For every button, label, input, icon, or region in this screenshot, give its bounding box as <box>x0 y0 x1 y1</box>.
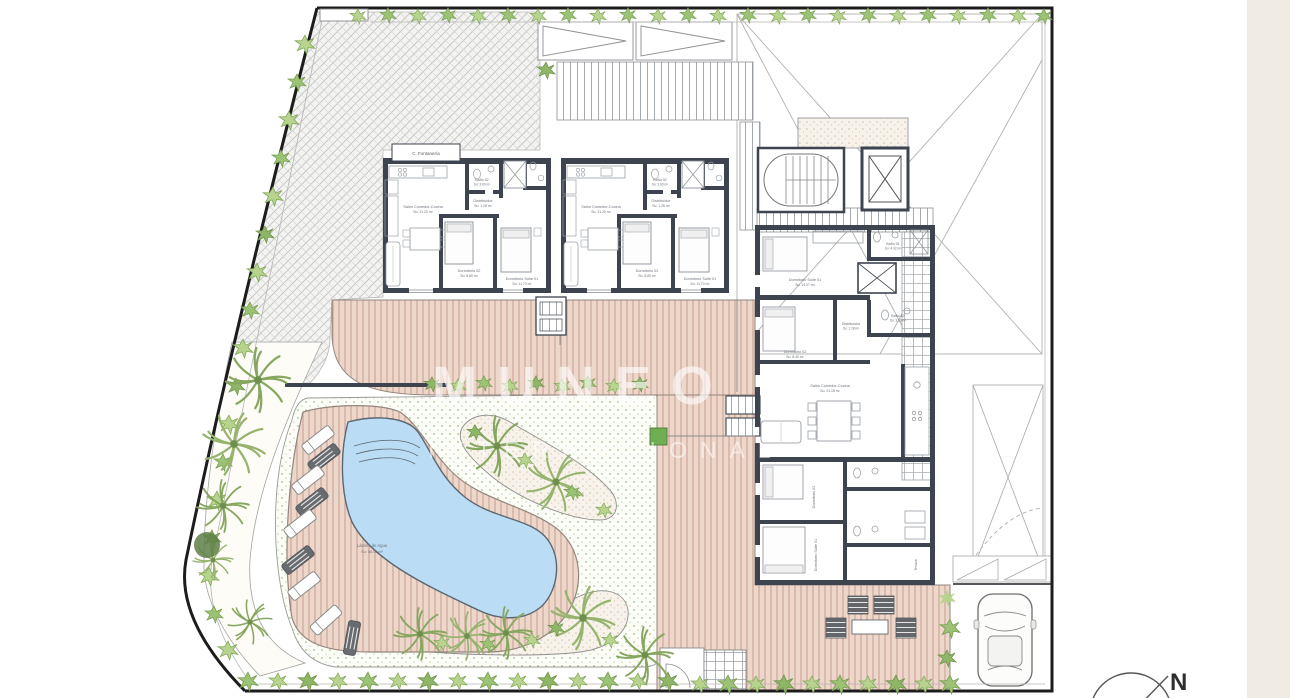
north-arrow: N <box>1090 669 1187 698</box>
retaining-wall <box>285 383 447 387</box>
room-area-b-bath2: Su: 3.50 m² <box>890 319 906 323</box>
watermark-line1: MUNEO <box>432 356 733 416</box>
room-label-b-bath1: Baño 01 <box>886 242 899 246</box>
watermark-line2: INTERNACIONAL <box>428 437 784 463</box>
floor-plan-drawing: Salón Comedor-Cocina Su: 21.20 m² Distri… <box>0 0 1290 698</box>
north-label: N <box>1170 669 1187 696</box>
site-plan-canvas: Salón Comedor-Cocina Su: 21.20 m² Distri… <box>0 0 1290 698</box>
room-area-b-bed2: Su: 8.40 m² <box>786 355 804 359</box>
room-label-b-hall: Distribuidor <box>842 322 861 326</box>
room-area-b-hall: Su: 1.28 m² <box>843 327 859 331</box>
roof-skylights <box>538 22 732 60</box>
room-label-b-bed2: Dormitorio 02 <box>784 350 807 354</box>
room-label-b-living: Salón Comedor-Cocina <box>810 384 850 388</box>
round-tree <box>194 532 220 558</box>
outside-parcel-strip <box>1247 0 1290 698</box>
installation-shaft <box>536 297 566 335</box>
car-icon <box>974 594 1036 686</box>
room-label-b-bath2: Baño 02 <box>891 314 904 318</box>
elevator-icon <box>862 148 908 210</box>
pool-area-label: Su: 56.00 m² <box>361 550 383 554</box>
room-area-b-bath1: Su: 4.02 m² <box>885 247 901 251</box>
room-area-b-suite: Su: 14.07 m² <box>795 283 815 287</box>
gravel-bed <box>798 118 908 148</box>
apartment-unit-a2 <box>561 158 729 293</box>
adjacent-plot-cross-lower <box>973 385 1043 570</box>
room-label-b-suite: Dormitorio Suite 01 <box>789 278 822 282</box>
stair-core <box>758 148 844 212</box>
utility-label: C. Fontanería <box>412 151 440 156</box>
pool-label: Lámina de Agua <box>357 543 388 548</box>
room-area-b-living: Su: 21.18 m² <box>820 389 840 393</box>
room-label-c-bed2: Dormitorio 02 <box>812 486 816 509</box>
apartment-unit-a1 <box>383 158 551 293</box>
room-label-c-suite: Dormitorio Suite 01 <box>814 539 818 572</box>
utility-closet: C. Fontanería <box>392 144 460 161</box>
room-label-c-terrace: Terraza <box>914 559 918 570</box>
watermark-text: MUNEO INTERNACIONAL <box>428 356 784 463</box>
